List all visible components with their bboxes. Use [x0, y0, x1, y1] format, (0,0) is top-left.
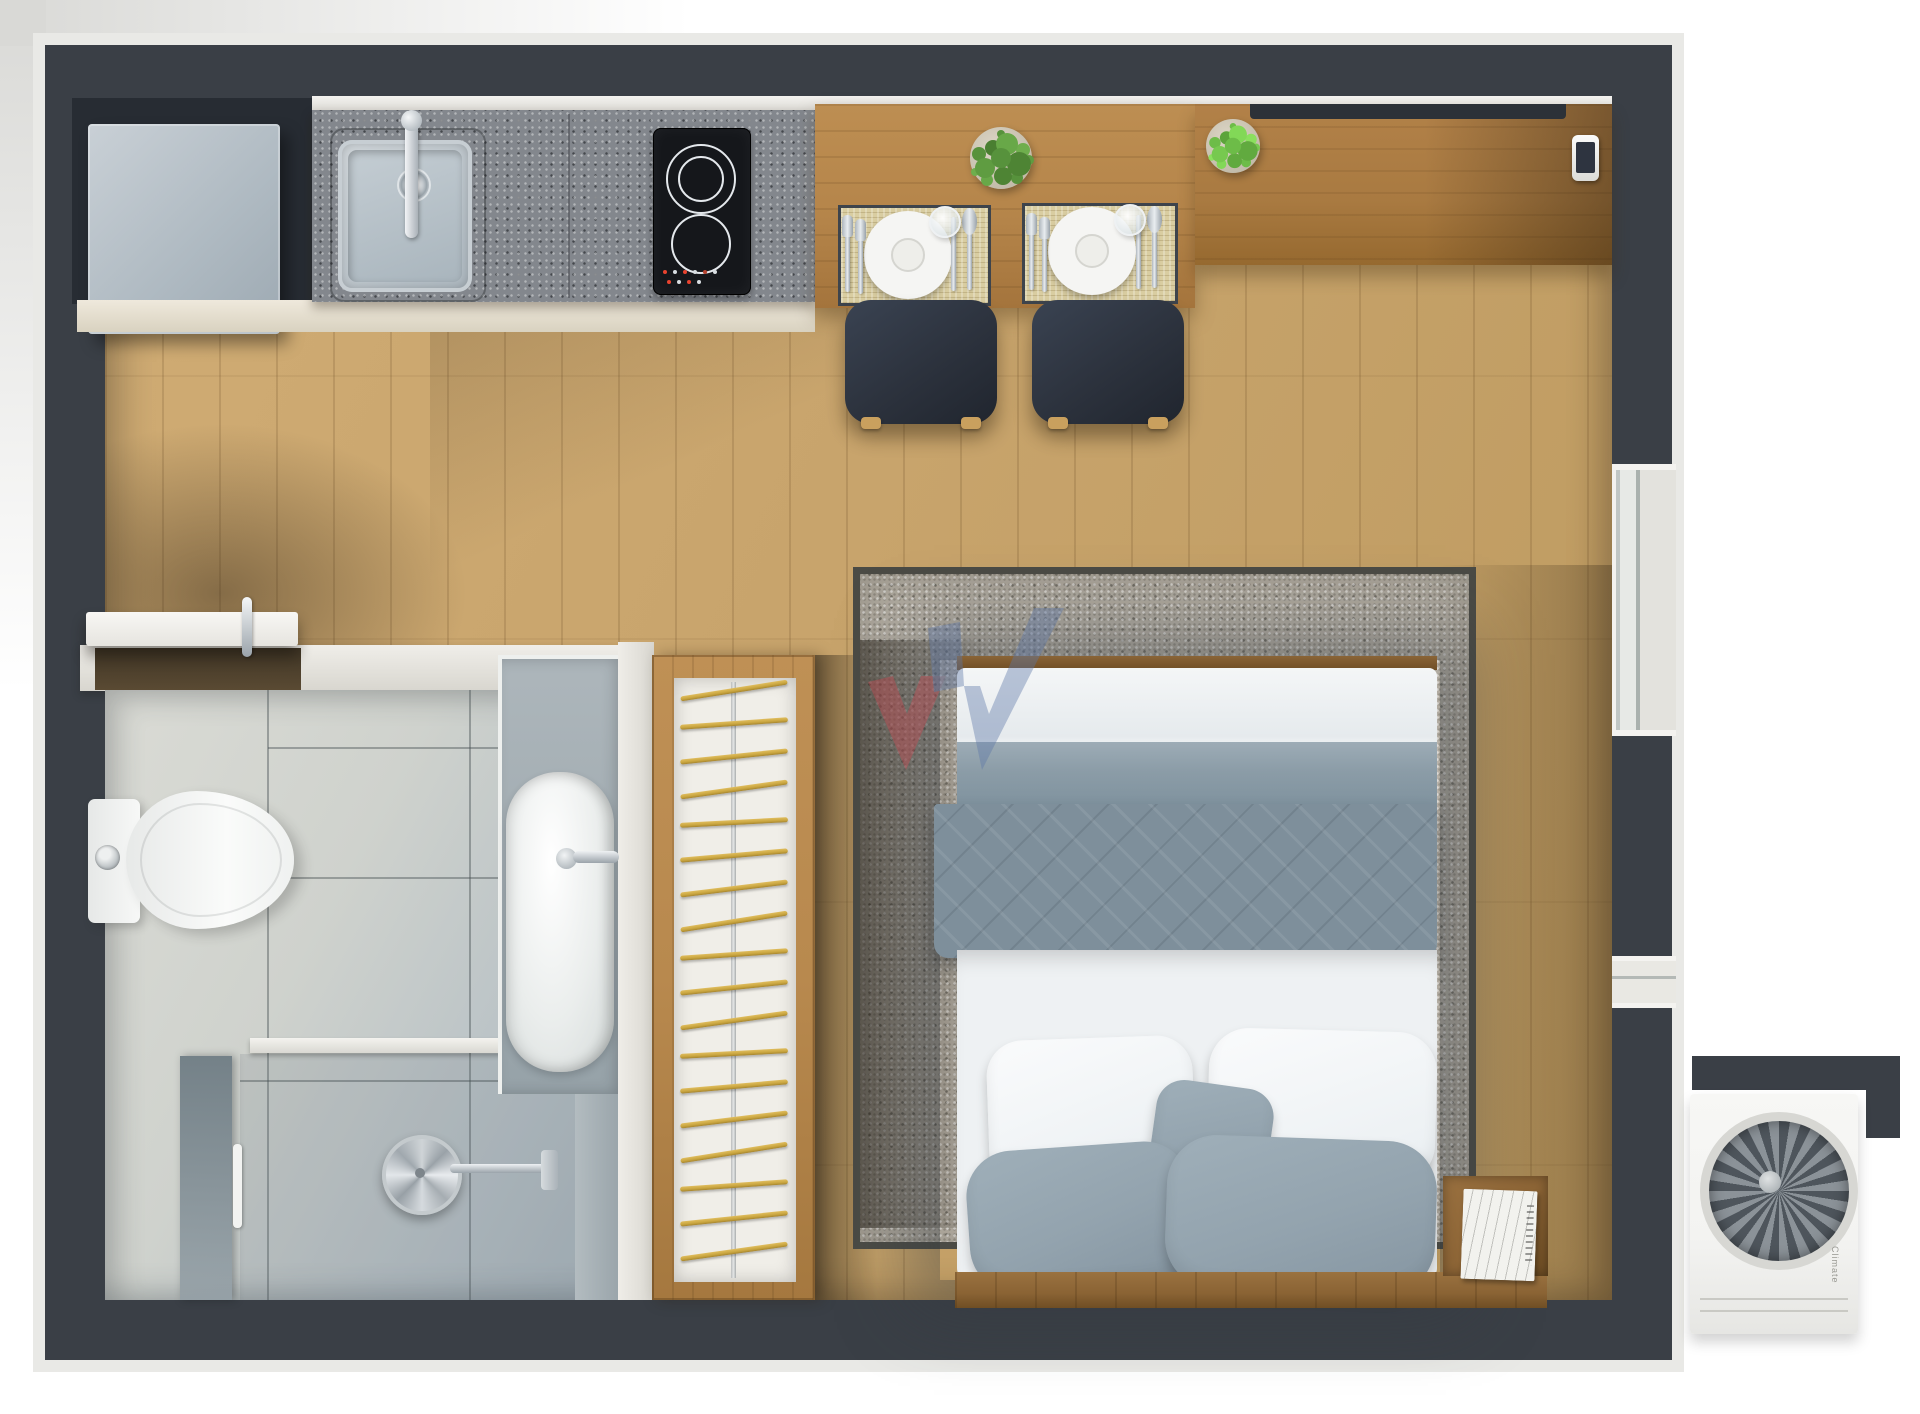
toilet-flush-button [95, 845, 120, 870]
drinking-glass [929, 206, 961, 238]
shower-head [382, 1135, 462, 1215]
shower-door-handle [233, 1144, 242, 1228]
spoon [1152, 230, 1157, 288]
right-wall-vent [1604, 956, 1676, 1008]
book-on-nightstand [1460, 1189, 1537, 1282]
watermark-logo: W [858, 598, 1072, 802]
bathroom-door [86, 612, 298, 646]
smartphone [1572, 135, 1599, 181]
headboard [955, 1272, 1547, 1308]
shower-arm [450, 1164, 546, 1173]
closet-rail [731, 682, 736, 1278]
bedroom-window [1604, 464, 1676, 736]
shower-arm-mount [541, 1150, 558, 1190]
burner-small-ring [671, 214, 731, 274]
shower-glass-door [180, 1056, 232, 1300]
kitchen-cabinet-front [77, 300, 815, 332]
fork [1042, 220, 1047, 292]
closet-interior [674, 678, 796, 1282]
cooktop [653, 128, 751, 295]
drinking-glass [1114, 204, 1146, 236]
fork [845, 218, 850, 292]
desk-wall-groove [1250, 104, 1566, 119]
exterior-wall-segment [1692, 1056, 1900, 1090]
burner-large-inner-ring [678, 156, 724, 202]
quilted-duvet [934, 804, 1437, 958]
bathroom-right-wall [618, 642, 654, 1300]
watermark-w-icon [858, 598, 1072, 802]
fork [858, 222, 863, 294]
potted-plant [1225, 138, 1241, 154]
fork [1029, 216, 1034, 290]
spoon [967, 232, 972, 290]
sideboard-desk [1195, 104, 1612, 265]
bathroom-doorway [95, 648, 301, 690]
bathroom-door-handle [242, 597, 252, 657]
basin-faucet-lever [573, 851, 619, 863]
potted-plant [991, 148, 1011, 168]
washbasin [506, 772, 614, 1072]
dining-chair [1032, 300, 1184, 424]
ac-brand-label: Climate [1826, 1246, 1840, 1316]
dining-chair [845, 300, 997, 424]
cooktop-control-indicators [663, 270, 667, 274]
exterior-wall-segment [1866, 1090, 1900, 1138]
floor-plan-scene: W Climate [0, 0, 1920, 1414]
kitchen-faucet [405, 116, 418, 238]
